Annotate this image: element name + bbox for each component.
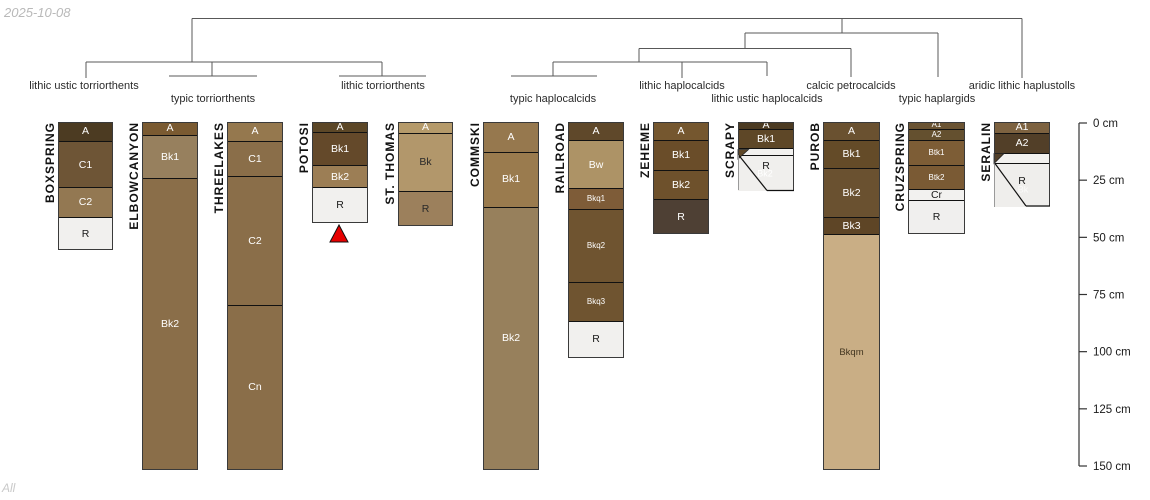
horizon-label: A1: [1016, 122, 1029, 133]
date-stamp: 2025-10-08: [4, 5, 71, 20]
seralin-bk-label: Bk: [1018, 186, 1029, 195]
profile-name-commski: COMMSKI: [468, 122, 482, 262]
taxon-label: typic torriorthents: [171, 93, 255, 105]
horizon: [994, 153, 1050, 163]
profile-name-boxspring: BOXSPRING: [43, 122, 57, 262]
taxon-label: lithic ustic haplocalcids: [711, 93, 822, 105]
depth-axis-tick-label: 25 cm: [1093, 175, 1124, 187]
profile-column-outline: [823, 122, 880, 470]
profile-column-outline: [312, 122, 368, 223]
profile-name-potosi: POTOSI: [297, 122, 311, 262]
footer-note: All: [2, 481, 15, 495]
scrapy-bk2-label: Bk2: [757, 170, 773, 179]
profile-name-zeheme: ZEHEME: [638, 122, 652, 262]
profile-name-seralin: SERALIN: [979, 122, 993, 262]
profile-name-scrapy: SCRAPY: [723, 122, 737, 262]
profile-name-purob: PUROB: [808, 122, 822, 262]
depth-axis-tick-label: 50 cm: [1093, 232, 1124, 244]
depth-axis-tick-label: 100 cm: [1093, 347, 1131, 359]
taxon-label: lithic ustic torriorthents: [29, 80, 138, 92]
depth-axis-tick-label: 150 cm: [1093, 461, 1131, 473]
profile-column-outline: [568, 122, 624, 358]
profile-column-outline: [653, 122, 709, 234]
profile-name-elbowcanyon: ELBOWCANYON: [127, 122, 141, 262]
soil-profile-figure: 2025-10-08 0 cm25 cm50 cm75 cm100 cm125 …: [0, 0, 1150, 500]
horizon-label: A2: [1016, 138, 1029, 149]
red-triangle-marker: [330, 225, 348, 242]
depth-axis-tick-label: 125 cm: [1093, 404, 1131, 416]
horizon: A1: [994, 122, 1050, 133]
profile-name-cruzspring: CRUZSPRING: [893, 122, 907, 262]
depth-axis-tick-label: 0 cm: [1093, 118, 1118, 130]
profile-column-outline: [142, 122, 198, 470]
profile-column-outline: [483, 122, 539, 470]
taxon-label: typic haplargids: [899, 93, 975, 105]
profile-name-st-thomas: ST. THOMAS: [383, 122, 397, 262]
profile-column-outline: [908, 122, 965, 234]
horizon: Bk1: [738, 129, 794, 148]
taxon-label: aridic lithic haplustolls: [969, 80, 1075, 92]
horizon-label: Bk1: [757, 134, 775, 145]
profile-name-railroad: RAILROAD: [553, 122, 567, 262]
profile-column-outline: [398, 122, 453, 226]
profile-column-outline: [58, 122, 113, 250]
depth-axis-tick-label: 75 cm: [1093, 290, 1124, 302]
taxon-label: lithic torriorthents: [341, 80, 425, 92]
profile-column-outline: [227, 122, 283, 470]
horizon: [738, 148, 794, 155]
taxon-label: lithic haplocalcids: [639, 80, 725, 92]
horizon: A: [738, 122, 794, 129]
taxon-label: calcic petrocalcids: [806, 80, 895, 92]
profile-name-threelakes: THREELAKES: [212, 122, 226, 262]
taxon-label: typic haplocalcids: [510, 93, 596, 105]
horizon: A2: [994, 133, 1050, 152]
